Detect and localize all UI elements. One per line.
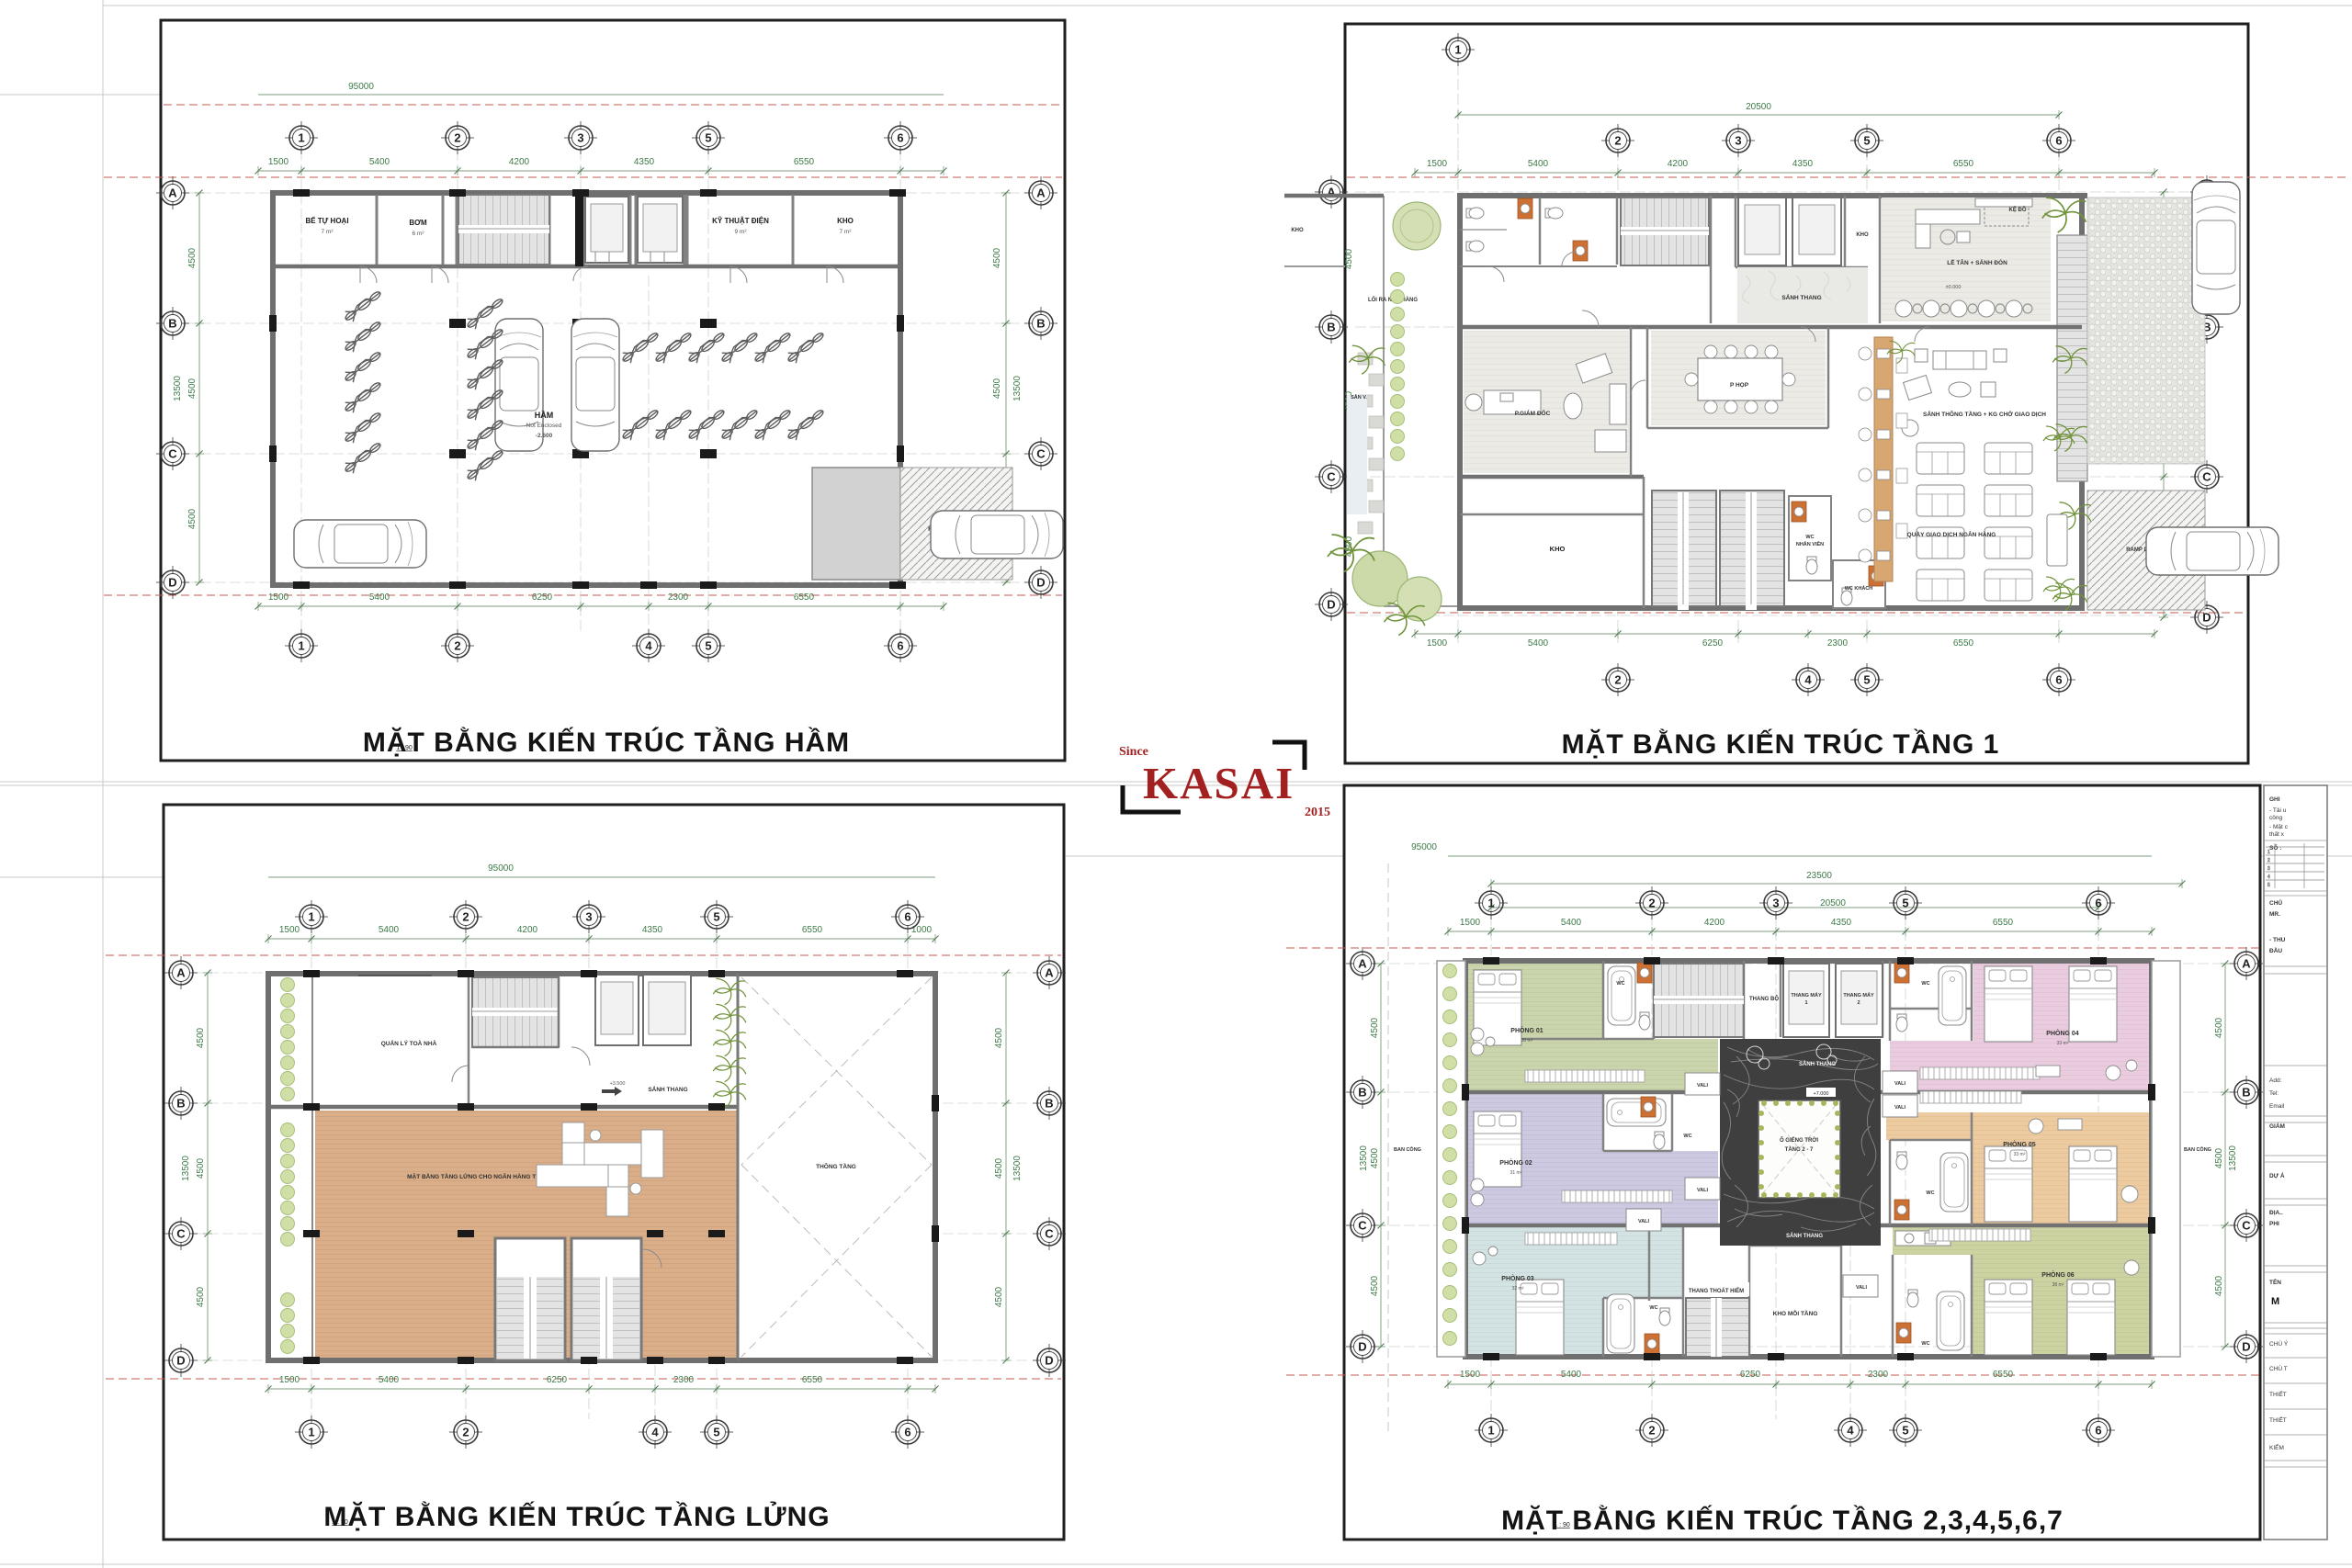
svg-text:3: 3	[1772, 897, 1779, 910]
svg-text:2300: 2300	[668, 592, 689, 603]
svg-text:4500: 4500	[2214, 1147, 2224, 1168]
svg-text:2300: 2300	[1827, 638, 1849, 649]
svg-text:6: 6	[904, 910, 910, 924]
svg-text:D: D	[2202, 611, 2211, 625]
svg-text:2: 2	[1857, 1000, 1860, 1006]
svg-text:4: 4	[2267, 874, 2270, 880]
svg-text:33 m²: 33 m²	[2057, 1041, 2069, 1046]
svg-text:C: C	[2242, 1219, 2251, 1233]
svg-text:6: 6	[2095, 1424, 2101, 1438]
svg-text:DỰ Á: DỰ Á	[2269, 1171, 2285, 1179]
svg-text:4500: 4500	[196, 1286, 206, 1307]
svg-text:MẶT BẰNG KIẾN TRÚC TẦNG 1: MẶT BẰNG KIẾN TRÚC TẦNG 1	[1562, 728, 2000, 760]
svg-text:1500: 1500	[279, 925, 300, 935]
svg-text:5400: 5400	[1561, 918, 1582, 928]
svg-text:A: A	[168, 186, 177, 200]
svg-text:A: A	[176, 966, 186, 980]
svg-text:23500: 23500	[1806, 871, 1832, 881]
svg-text:4200: 4200	[1668, 159, 1689, 169]
svg-text:2: 2	[462, 910, 469, 924]
svg-text:Add:: Add:	[2269, 1077, 2282, 1084]
svg-text:A: A	[1036, 186, 1046, 200]
svg-text:QUẢN LÝ TOÀ NHÀ: QUẢN LÝ TOÀ NHÀ	[381, 1039, 437, 1047]
svg-text:TÊN: TÊN	[2269, 1278, 2281, 1286]
svg-text:5: 5	[1902, 897, 1908, 910]
svg-text:5: 5	[713, 910, 719, 924]
svg-text:4350: 4350	[1792, 159, 1814, 169]
svg-text:4: 4	[645, 639, 652, 653]
svg-text:D: D	[2242, 1340, 2250, 1354]
svg-text:1: 1	[2267, 850, 2270, 855]
svg-text:WC KHÁCH: WC KHÁCH	[1845, 585, 1873, 592]
svg-text:A: A	[1358, 957, 1367, 971]
svg-text:4200: 4200	[509, 157, 530, 167]
svg-text:6550: 6550	[1993, 1370, 2014, 1380]
svg-text:PHI: PHI	[2269, 1221, 2279, 1227]
svg-text:D: D	[1327, 598, 1335, 612]
svg-text:5: 5	[2267, 883, 2270, 888]
svg-text:4350: 4350	[642, 925, 663, 935]
svg-text:D: D	[168, 576, 176, 590]
svg-text:C: C	[1358, 1219, 1367, 1233]
svg-text:SẢNH THANG: SẢNH THANG	[1781, 293, 1821, 301]
svg-text:7 m²: 7 m²	[322, 229, 334, 235]
svg-text:4350: 4350	[634, 157, 655, 167]
svg-text:KHO: KHO	[1856, 232, 1869, 238]
svg-text:D: D	[176, 1354, 185, 1368]
svg-text:- Mặt c: - Mặt c	[2269, 824, 2289, 830]
svg-text:6550: 6550	[802, 925, 823, 935]
svg-text:1: 1	[308, 910, 314, 924]
svg-text:C: C	[168, 447, 177, 461]
svg-text:CHÚ T: CHÚ T	[2269, 1364, 2288, 1372]
svg-text:ĐỊA..: ĐỊA..	[2269, 1210, 2283, 1216]
svg-text:P HỌP: P HỌP	[1730, 382, 1749, 389]
svg-text:- THU: - THU	[2269, 937, 2286, 943]
svg-text:BAN CÔNG: BAN CÔNG	[2184, 1145, 2211, 1153]
svg-text:2: 2	[454, 639, 460, 653]
svg-text:6: 6	[897, 131, 903, 145]
svg-text:6: 6	[2055, 673, 2062, 687]
svg-text:5: 5	[1863, 134, 1870, 148]
svg-text:1: 1	[1487, 897, 1494, 910]
svg-text:20500: 20500	[1820, 898, 1846, 908]
svg-text:Ô GIẾNG TRỜI: Ô GIẾNG TRỜI	[1780, 1136, 1818, 1144]
svg-text:GHI: GHI	[2269, 796, 2280, 803]
svg-text:33 m²: 33 m²	[2014, 1152, 2026, 1157]
svg-text:2: 2	[454, 131, 460, 145]
svg-text:VALI: VALI	[1856, 1285, 1868, 1291]
svg-text:6550: 6550	[802, 1375, 823, 1385]
svg-text:3: 3	[585, 910, 592, 924]
svg-text:Since: Since	[1119, 745, 1148, 759]
svg-text:2300: 2300	[1868, 1370, 1889, 1380]
svg-text:4500: 4500	[1370, 1017, 1380, 1038]
svg-text:THANG BỘ: THANG BỘ	[1749, 995, 1779, 1002]
svg-text:KHO: KHO	[1550, 545, 1566, 553]
svg-text:1500: 1500	[268, 157, 289, 167]
svg-text:4500: 4500	[187, 378, 198, 399]
svg-text:1500: 1500	[279, 1375, 300, 1385]
svg-text:1: 1	[1454, 43, 1461, 57]
svg-text:13500: 13500	[1012, 376, 1023, 401]
svg-text:WC: WC	[1921, 1341, 1929, 1347]
svg-text:VALI: VALI	[1697, 1188, 1709, 1193]
svg-text:7 m²: 7 m²	[840, 229, 853, 235]
svg-text:Email: Email	[2269, 1103, 2285, 1110]
svg-text:-2.600: -2.600	[536, 433, 553, 439]
svg-text:4500: 4500	[196, 1027, 206, 1048]
svg-text:4500: 4500	[994, 1286, 1004, 1307]
svg-text:WC: WC	[1921, 981, 1929, 987]
svg-text:PHÒNG 02: PHÒNG 02	[1499, 1158, 1532, 1167]
svg-text:VALI: VALI	[1697, 1083, 1709, 1089]
svg-text:MR.: MR.	[2269, 911, 2280, 918]
svg-text:C: C	[2202, 470, 2211, 484]
svg-text:VALI: VALI	[1894, 1081, 1906, 1087]
svg-text:LỄ TÂN + SẢNH ĐÓN: LỄ TÂN + SẢNH ĐÓN	[1947, 258, 2007, 266]
svg-text:4500: 4500	[2214, 1275, 2224, 1296]
svg-text:PHÒNG 01: PHÒNG 01	[1510, 1026, 1543, 1034]
svg-text:1: 1	[308, 1426, 314, 1439]
svg-text:D: D	[1045, 1354, 1053, 1368]
svg-text:5: 5	[705, 639, 711, 653]
svg-text:4500: 4500	[1344, 248, 1354, 269]
svg-text:13500: 13500	[1012, 1156, 1023, 1181]
svg-text:B: B	[1045, 1097, 1053, 1111]
svg-text:6250: 6250	[532, 592, 553, 603]
svg-text:+7.000: +7.000	[1814, 1091, 1829, 1097]
svg-text:PHÒNG 03: PHÒNG 03	[1501, 1274, 1534, 1282]
svg-text:4500: 4500	[187, 508, 198, 529]
svg-text:6550: 6550	[794, 592, 815, 603]
svg-text:PHÒNG 06: PHÒNG 06	[2041, 1270, 2075, 1279]
svg-text:MẶT BẰNG KIẾN TRÚC TẦNG 2,3,4,: MẶT BẰNG KIẾN TRÚC TẦNG 2,3,4,5,6,7	[1501, 1505, 2064, 1536]
svg-text:TẦNG 2 - 7: TẦNG 2 - 7	[1785, 1146, 1814, 1153]
svg-text:C: C	[176, 1227, 186, 1241]
svg-text:VALI: VALI	[1894, 1105, 1906, 1111]
svg-text:3: 3	[577, 131, 583, 145]
svg-text:4350: 4350	[1831, 918, 1852, 928]
svg-text:1500: 1500	[1427, 159, 1448, 169]
svg-text:±0.000: ±0.000	[1946, 285, 1962, 290]
svg-text:D: D	[1036, 576, 1045, 590]
svg-text:20500: 20500	[1746, 102, 1771, 112]
svg-text:5400: 5400	[1528, 638, 1549, 649]
svg-text:A: A	[1045, 966, 1054, 980]
svg-text:NHÂN VIÊN: NHÂN VIÊN	[1796, 540, 1824, 547]
svg-text:- Tải u: - Tải u	[2269, 807, 2287, 814]
svg-text:B: B	[1358, 1086, 1366, 1100]
svg-text:6550: 6550	[1953, 638, 1974, 649]
svg-text:PHÒNG 05: PHÒNG 05	[2003, 1140, 2036, 1148]
svg-text:MẶT BẰNG KIẾN TRÚC TẦNG LỬNG: MẶT BẰNG KIẾN TRÚC TẦNG LỬNG	[323, 1501, 830, 1532]
svg-text:13500: 13500	[173, 376, 183, 401]
svg-text:SẢNH THANG: SẢNH THANG	[1786, 1233, 1823, 1239]
svg-text:5: 5	[713, 1426, 719, 1439]
svg-text:1500: 1500	[1460, 1370, 1481, 1380]
svg-text:2: 2	[1648, 897, 1655, 910]
svg-text:1: 1	[1487, 1424, 1494, 1438]
svg-text:4500: 4500	[2214, 1017, 2224, 1038]
svg-text:4500: 4500	[992, 378, 1002, 399]
svg-text:2: 2	[462, 1426, 469, 1439]
svg-text:38 m²: 38 m²	[2052, 1282, 2064, 1288]
svg-text:KIỂM: KIỂM	[2269, 1443, 2284, 1451]
svg-text:1500: 1500	[1460, 918, 1481, 928]
svg-text:2300: 2300	[673, 1375, 695, 1385]
svg-text:13500: 13500	[181, 1156, 191, 1181]
svg-text:THANG MÁY: THANG MÁY	[1791, 992, 1822, 998]
svg-text:PHÒNG 04: PHÒNG 04	[2046, 1029, 2079, 1037]
svg-text:6250: 6250	[1740, 1370, 1761, 1380]
svg-text:4500: 4500	[1370, 1275, 1380, 1296]
svg-text:5400: 5400	[379, 925, 400, 935]
svg-text:1: 1	[1804, 1000, 1807, 1006]
svg-text:WC: WC	[1683, 1134, 1691, 1139]
svg-text:KỸ THUẬT ĐIỆN: KỸ THUẬT ĐIỆN	[712, 217, 769, 225]
svg-text:VALI: VALI	[1638, 1219, 1650, 1224]
svg-text:5: 5	[1863, 673, 1870, 687]
svg-text:5400: 5400	[369, 157, 390, 167]
svg-text:BƠM: BƠM	[409, 219, 427, 227]
svg-text:5400: 5400	[379, 1375, 400, 1385]
svg-text:KASAI: KASAI	[1143, 758, 1295, 808]
svg-text:1500: 1500	[1427, 638, 1448, 649]
svg-text:31 m²: 31 m²	[1510, 1170, 1522, 1176]
svg-text:MẶT BẰNG KIẾN TRÚC TẦNG HẦM: MẶT BẰNG KIẾN TRÚC TẦNG HẦM	[363, 727, 850, 758]
svg-text:WC: WC	[1926, 1190, 1934, 1196]
svg-text:32 m²: 32 m²	[1512, 1286, 1524, 1292]
svg-text:SẢNH THANG: SẢNH THANG	[648, 1085, 687, 1093]
svg-text:C: C	[1327, 470, 1336, 484]
svg-text:3: 3	[2267, 866, 2270, 872]
svg-text:4200: 4200	[1704, 918, 1725, 928]
svg-text:KHO: KHO	[1291, 228, 1304, 233]
svg-text:6: 6	[897, 639, 903, 653]
svg-text:6550: 6550	[794, 157, 815, 167]
svg-text:4200: 4200	[517, 925, 538, 935]
svg-text:WC: WC	[1649, 1305, 1657, 1311]
svg-text:4500: 4500	[994, 1157, 1004, 1179]
svg-text:6: 6	[2095, 897, 2101, 910]
svg-text:95000: 95000	[488, 863, 514, 874]
svg-text:3: 3	[1735, 134, 1741, 148]
svg-text:KHO: KHO	[837, 217, 854, 225]
svg-text:4: 4	[1804, 673, 1812, 687]
svg-text:6550: 6550	[1953, 159, 1974, 169]
svg-text:D: D	[1358, 1340, 1366, 1354]
svg-text:WC: WC	[1616, 981, 1624, 987]
svg-text:B: B	[168, 317, 176, 331]
svg-text:1: 1	[298, 639, 304, 653]
svg-text:4500: 4500	[196, 1157, 206, 1179]
svg-text:5: 5	[705, 131, 711, 145]
svg-text:6250: 6250	[547, 1375, 568, 1385]
svg-text:CHỦ: CHỦ	[2269, 898, 2282, 907]
svg-text:95000: 95000	[348, 82, 374, 92]
svg-text:6 m²: 6 m²	[413, 231, 425, 237]
svg-text:13500: 13500	[2228, 1145, 2238, 1171]
svg-text:KỆ ĐỒ: KỆ ĐỒ	[2008, 206, 2026, 213]
svg-text:2: 2	[2267, 858, 2270, 863]
svg-text:4500: 4500	[992, 247, 1002, 268]
svg-text:M: M	[2271, 1296, 2279, 1307]
svg-text:công: công	[2269, 815, 2282, 821]
svg-text:4: 4	[1847, 1424, 1854, 1438]
svg-text:2015: 2015	[1305, 806, 1330, 819]
svg-text:4500: 4500	[994, 1027, 1004, 1048]
svg-text:2: 2	[1614, 673, 1621, 687]
svg-text:B: B	[1327, 321, 1335, 334]
svg-text:B: B	[1036, 317, 1045, 331]
svg-text:B: B	[2242, 1086, 2250, 1100]
svg-text:1500: 1500	[268, 592, 289, 603]
svg-text:Tel:: Tel:	[2269, 1090, 2278, 1097]
svg-text:CHÚ Ý: CHÚ Ý	[2269, 1339, 2289, 1348]
svg-text:SÂN V.: SÂN V.	[1351, 394, 1367, 400]
svg-text:13500: 13500	[1359, 1145, 1369, 1171]
svg-text:5400: 5400	[369, 592, 390, 603]
svg-text:A: A	[2242, 957, 2251, 971]
svg-text:9 m²: 9 m²	[735, 229, 748, 235]
svg-text:6: 6	[904, 1426, 910, 1439]
svg-text:1: 1	[298, 131, 304, 145]
svg-text:thất x: thất x	[2269, 829, 2285, 838]
svg-text:30 m²: 30 m²	[1521, 1038, 1533, 1043]
svg-text:4: 4	[651, 1426, 659, 1439]
svg-text:6: 6	[2055, 134, 2062, 148]
svg-text:C: C	[1036, 447, 1046, 461]
svg-text:6550: 6550	[1993, 918, 2014, 928]
svg-text:95000: 95000	[1411, 842, 1437, 852]
svg-text:WC: WC	[1805, 535, 1814, 540]
svg-text:5400: 5400	[1561, 1370, 1582, 1380]
svg-text:C: C	[1045, 1227, 1054, 1241]
svg-text:THANG THOÁT HIỂM: THANG THOÁT HIỂM	[1689, 1288, 1744, 1294]
svg-text:5400: 5400	[1528, 159, 1549, 169]
svg-text:+3.500: +3.500	[610, 1081, 626, 1087]
svg-text:2: 2	[1648, 1424, 1655, 1438]
svg-text:BAN CÔNG: BAN CÔNG	[1394, 1145, 1421, 1153]
svg-text:6250: 6250	[1702, 638, 1724, 649]
svg-text:THANG MÁY: THANG MÁY	[1843, 992, 1874, 998]
svg-text:4500: 4500	[187, 247, 198, 268]
svg-text:4500: 4500	[1370, 1147, 1380, 1168]
svg-text:Not Enclosed: Not Enclosed	[526, 423, 562, 429]
svg-text:5: 5	[1902, 1424, 1908, 1438]
svg-text:BỂ TỰ HOẠI: BỂ TỰ HOẠI	[305, 217, 348, 225]
svg-text:B: B	[176, 1097, 185, 1111]
svg-text:HẦM: HẦM	[535, 411, 554, 420]
svg-text:2: 2	[1614, 134, 1621, 148]
